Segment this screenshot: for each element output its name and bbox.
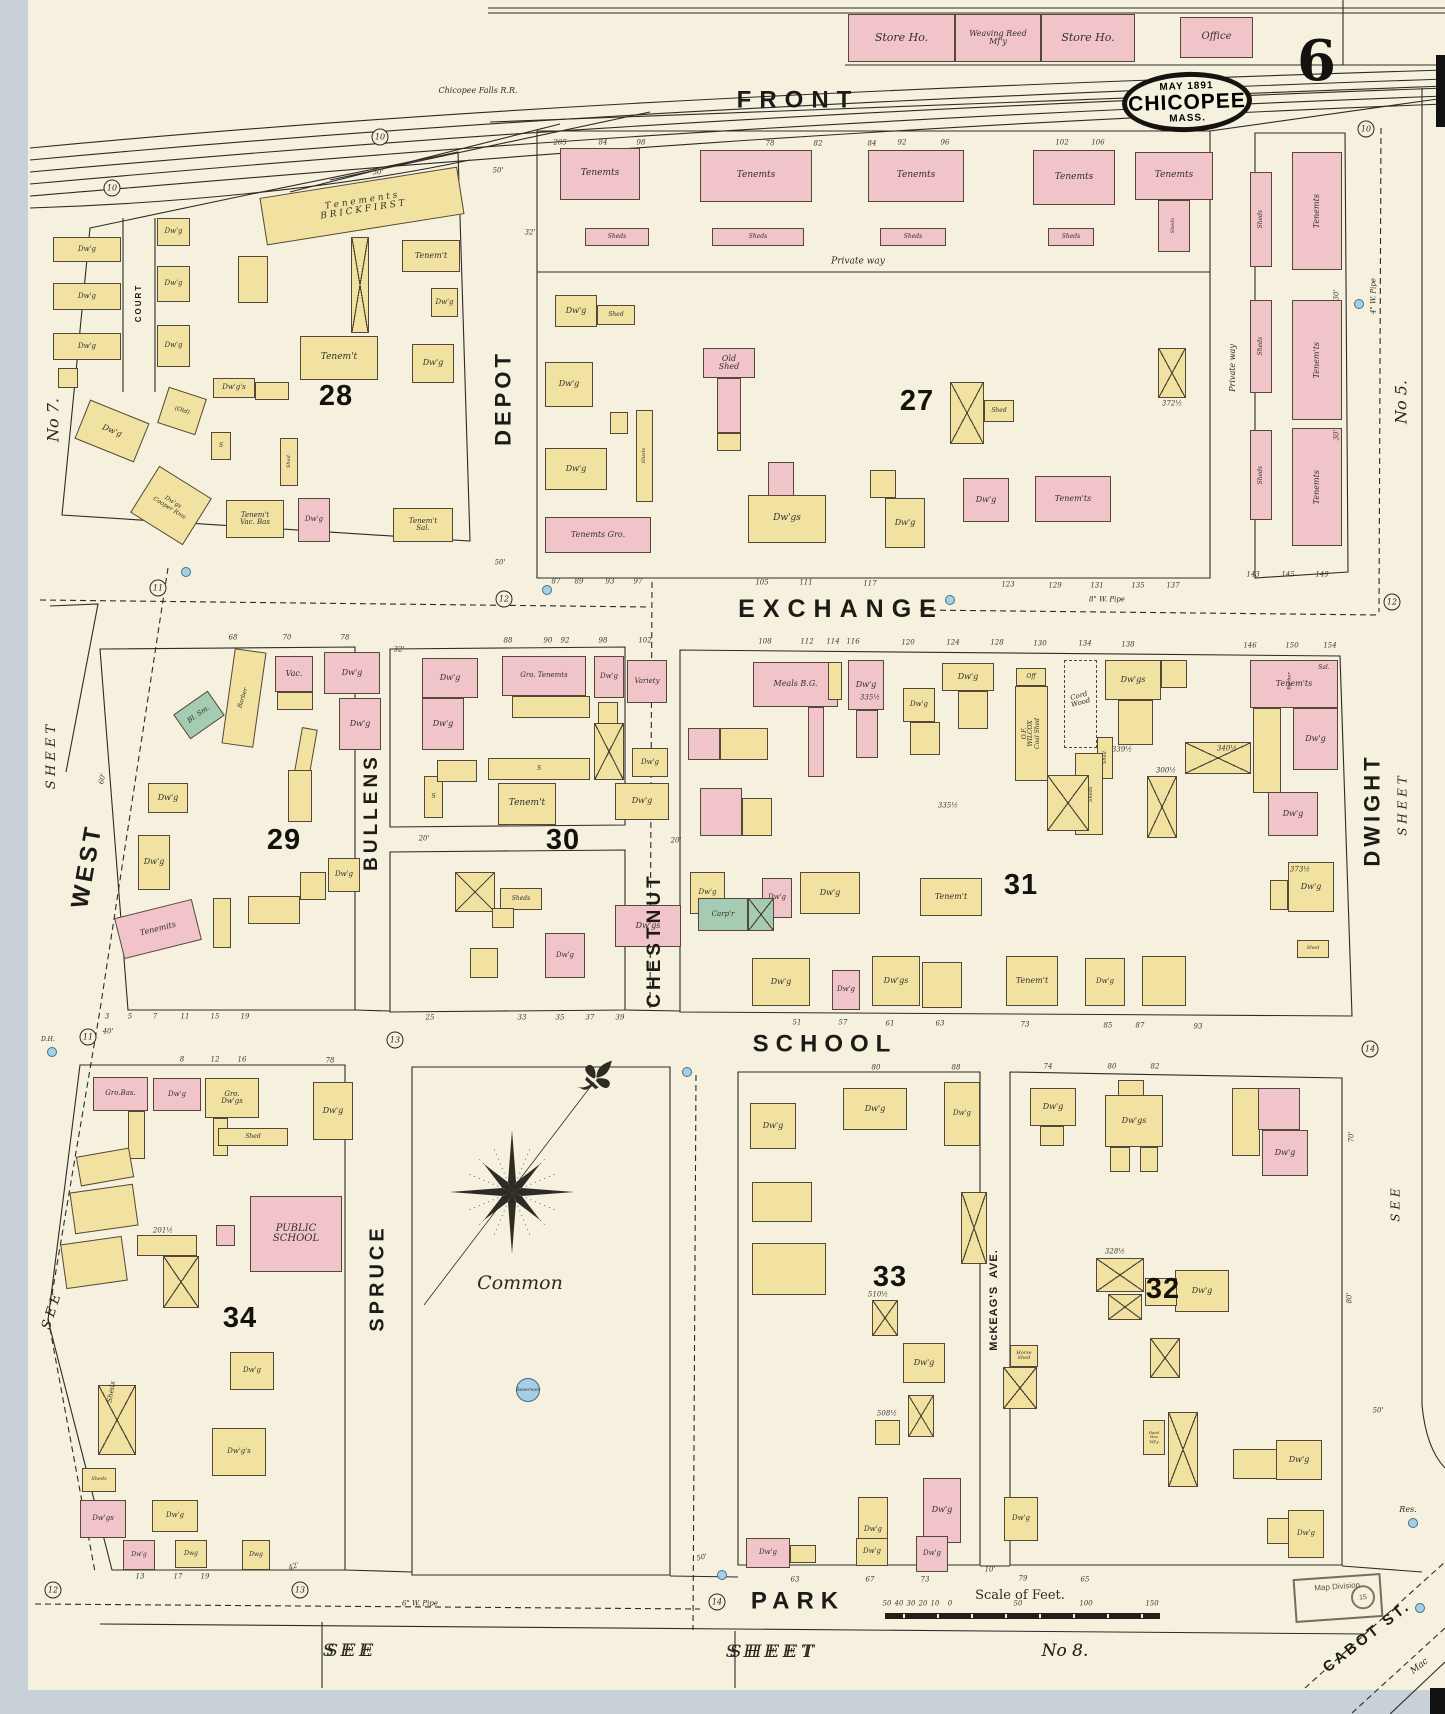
building-dw-g: Dw'g [800,872,860,914]
building [856,710,878,758]
building-label: Tenemts [1313,194,1321,228]
building-label: Tenem't Vac. Bas [240,512,270,527]
building-sheds: Sheds [880,228,946,246]
annotation: Chicopee Falls R.R. [439,87,518,95]
building-label: Dw'g [865,1105,886,1113]
street-number: 35 [556,1014,565,1021]
building [958,691,988,729]
building [828,662,842,700]
street-number: 98 [599,637,608,644]
street-number: 57 [839,1019,848,1026]
building-label: Dw'g [1012,1515,1030,1522]
building-label: Dw'g [1301,883,1322,891]
margin-label: S H E E T [1397,776,1410,835]
building-tenem-ts: Tenem'ts [1035,476,1111,522]
building-label: Sheds [1062,234,1080,240]
building-label: Shed [608,312,623,318]
building [808,707,824,777]
building-label: Sheds [1258,337,1264,355]
building [950,382,984,444]
street-number: 82 [814,140,823,147]
building-dw-g: Dw'g [848,660,884,710]
building [875,1420,900,1445]
building-dw-g: Dw'g [843,1088,907,1130]
building-label: Dw'g's [222,384,246,391]
dimension-label: 328½ [1105,1248,1125,1255]
sheet-number: 6 [1297,28,1336,94]
building-dw-g: Dw'g [230,1352,274,1390]
scale-tick: 30 [907,1600,916,1607]
building-label: Dw'g [856,681,877,689]
building [1108,1294,1142,1320]
street-number: 114 [826,638,839,645]
street-number: 3 [105,1013,109,1020]
street-number: 87 [552,578,561,585]
annotation: Common [477,1274,563,1294]
building [752,1182,812,1222]
dimension-label: 50' [373,169,384,176]
building-dw-gs: Dw'gs [80,1500,126,1538]
building-dw-g: Dw'g [157,266,190,302]
building-label: Variety [634,678,659,685]
hydrant-icon [717,1570,727,1580]
building-label: Shed [1307,946,1320,951]
building-dw-g: Dw'g [313,1082,353,1140]
building-label: Dw'g [164,342,182,349]
compass-rose [450,1130,574,1254]
building-tenem-t-sal: Tenem't Sal. [393,508,453,542]
building-label: Dw'g [164,228,182,235]
building-label: Tenem't [415,252,447,260]
building-label: Dw'g [837,986,855,993]
scale-tick: 150 [1145,1600,1158,1607]
building-label: Sheds [608,234,626,240]
building-label: Dw'g [559,380,580,388]
map-line [412,1067,670,1575]
building [688,728,720,760]
street-number: 84 [599,139,608,146]
street-number: 149 [1315,571,1328,578]
building [1258,1088,1300,1130]
building-label: Reed Hse Mf'y [1149,1431,1159,1444]
building-label: PUBLIC SCHOOL [273,1224,319,1245]
dimension-label: 30' [1333,430,1340,441]
street-label-park: PARK [751,1588,845,1613]
block-number-34: 34 [223,1303,257,1333]
street-number: 33 [518,1014,527,1021]
scale-bar [885,1613,1160,1619]
building [790,1545,816,1563]
building-dw-g: Dw'g [123,1540,155,1570]
building-label: Dw'g [1043,1103,1064,1111]
title-state: MASS. [1169,112,1206,124]
street-number: 111 [799,579,812,586]
annotation: 4" W. Pipe [1370,278,1377,314]
scale-tick: 0 [948,1600,952,1607]
dimension-label: 508½ [877,1410,897,1417]
building-label: Shed [245,1134,260,1140]
building [437,760,477,782]
dimension-label: 340½ [1217,745,1237,752]
building-label: Dw'g [820,889,841,897]
building-label: Dw'g [771,978,792,986]
building-label: Sheds [642,448,647,463]
building-dw-g: Dw'g [555,295,597,327]
margin-label: S E E [1390,1188,1403,1221]
street-number: 74 [1044,1063,1053,1070]
building [717,433,741,451]
building-dw-g: Dw'g [298,498,330,542]
street-number: 61 [886,1020,895,1027]
building [752,1243,826,1295]
building-label: Dw'g [350,720,371,728]
street-number: 129 [1048,582,1061,589]
street-number: 124 [946,639,959,646]
building-label: Tenem't [935,893,967,901]
street-number: 116 [846,638,859,645]
building [238,256,268,303]
building-label: Dw'g [131,1552,146,1558]
annotation: D.H. [41,1037,55,1043]
street-number: 8 [180,1056,184,1063]
building [748,898,774,931]
street-number: 25 [426,1014,435,1021]
building-dw-g: Dw'g [752,958,810,1006]
margin-label: No 8. [1042,1643,1089,1661]
street-number: 85 [1104,1022,1113,1029]
street-number: 65 [1081,1576,1090,1583]
building-label: Dw'gs [884,977,909,985]
street-number: 92 [561,637,570,644]
dimension-label: 10' [985,1566,996,1573]
building [610,412,628,434]
building-tenem-t: Tenem't [402,240,460,272]
building [248,896,300,924]
building [1003,1367,1037,1409]
building-label: Tenem't [509,799,545,808]
street-number: 84 [868,140,877,147]
building-dw-g: Dw'g [545,362,593,407]
building-dw-g: Dw'g [53,283,121,310]
building-dw-g: Dw'g [942,663,994,691]
street-number: 79 [1019,1575,1028,1582]
building [128,1111,145,1159]
building [1110,1147,1130,1172]
street-number: 88 [952,1064,961,1071]
building [922,962,962,1008]
building [872,1300,898,1336]
building-tenemts: Tenemts [1135,152,1213,200]
building-gro-bas: Gro.Bas. [93,1077,148,1111]
dimension-label: 20' [671,837,682,844]
street-number: 93 [1194,1023,1203,1030]
building-label: O.F. WILCOX Coal Shed [1022,718,1041,749]
margin-label: S H E E T [45,725,59,789]
street-label-bullens: BULLENS [362,753,382,871]
building-label: Dw'g [1275,1149,1296,1157]
hydrant-icon [1408,1518,1418,1528]
annotation: 8" W. Pipe [1089,596,1125,603]
building [1267,1518,1289,1544]
building-label: T e n e m e n t s B R I C K F I R S T [319,190,406,222]
building-dw-g: Dw'g [632,748,668,777]
building-label: Dw'g [566,307,587,315]
building-label: Dw'g [144,858,165,866]
building-shed: Shed [597,305,635,325]
building-label: Tenem'ts [1313,342,1321,378]
building [512,696,590,718]
building-label: Dw'g [600,673,618,680]
building-dw-g: Dw'g [885,498,925,548]
building-label: Dw'g [895,519,916,527]
building-label: Vac. [286,670,303,678]
building [455,872,495,912]
building [961,1192,987,1264]
scale-tick: 10 [931,1600,940,1607]
building-label: Dw'g [101,423,123,438]
street-number: 146 [1243,642,1256,649]
building-label: Sheds [749,234,767,240]
building-dw-g: Dw'g [1085,958,1125,1006]
building [720,728,768,760]
building-label: Tenem'ts [1055,495,1091,503]
building-horse-shed: Horse Shed [1010,1345,1038,1367]
building-label: Dw'g [1283,810,1304,818]
building-weaving-reed-mf-y: Weaving Reed Mf'y [955,14,1041,62]
building-label: Sheds [1258,210,1264,228]
building [277,692,313,710]
annotation: Barber [1287,672,1292,690]
building-dw-g: Dw'g [1175,1270,1229,1312]
building-label: Tenemts Gro. [571,531,625,539]
dimension-label: 339½ [1112,746,1132,753]
building-sheds: Sheds [1158,200,1190,252]
building-dw-gs: Dw'gs [1105,660,1161,700]
street-number: 15 [211,1013,220,1020]
building-label: Dw'g [335,871,353,878]
scale-tick: 50 [883,1600,892,1607]
block-number-30: 30 [546,825,580,855]
water-pipe-marker: 12 [45,1582,62,1599]
water-pipe-marker: 13 [292,1582,309,1599]
street-number: 68 [229,634,238,641]
building-label: Dwg [249,1552,263,1558]
building-label: Off [1026,674,1035,680]
building-label: Old Shed [719,355,740,372]
annotation: 6" W. Pipe [402,1600,438,1607]
building-label: Dw'g [168,1091,186,1098]
building-s: S [488,758,590,780]
building-label: Dw'g [958,673,979,681]
building-dw-g: Dw'g [832,970,860,1010]
dimension-label: 510½ [868,1291,888,1298]
building-label: Dw'g [78,293,96,300]
building [1118,1080,1144,1096]
dimension-label: 40' [103,1028,114,1035]
dimension-label: 32' [525,229,536,236]
scale-tick: 40 [895,1600,904,1607]
building-sheds: Sheds [712,228,804,246]
building-dw-g: Dw'g [339,698,381,750]
street-number: 143 [1246,571,1259,578]
building-dw-g: Dw'g [594,656,624,698]
building-label: Dw'g's [227,1448,251,1455]
building-tenemts: Tenemts [560,148,640,200]
water-pipe-marker: 11 [150,580,167,597]
building-dw-g: Dw'g [1268,792,1318,836]
street-number: 51 [793,1019,802,1026]
street-number: 78 [326,1057,335,1064]
building-dw-gs: Dw'gs [748,495,826,543]
building [1232,1088,1260,1156]
water-pipe-marker: 12 [1384,594,1401,611]
street-number: 73 [921,1576,930,1583]
water-pipe-marker: 13 [387,1032,404,1049]
map-line [390,850,625,1012]
building-label: Shed [991,408,1006,414]
street-label-chestnut: CHESTNUT [645,872,665,1007]
building-dw-g: Dw'g [138,835,170,890]
street-number: 128 [990,639,1003,646]
building [742,798,772,836]
dimension-label: 335½ [860,694,880,701]
water-pipe-marker: 14 [709,1594,726,1611]
block-number-31: 31 [1004,870,1038,900]
building-tenemts-gro: Tenemts Gro. [545,517,651,553]
building-dw-g: Dw'g [615,783,669,820]
street-number: 105 [755,579,768,586]
building-dw-g: Dw'g [903,1343,945,1383]
building-dw-gs: Dw'gs [872,956,920,1006]
building-label: Dw'g [440,674,461,682]
street-number: 134 [1078,640,1091,647]
building-label: Dw'g [166,1512,184,1519]
building-o-f-wilcox-coal-shed: O.F. WILCOX Coal Shed [1015,686,1048,781]
map-line [48,1065,345,1570]
building-label: Shed [286,456,291,469]
building-gro-tenemts: Gro. Tenemts [502,656,586,696]
building [910,722,940,755]
building-label: Dw'g [243,1367,261,1374]
street-number: 90 [544,637,553,644]
building-meals-b-g: Meals B.G. [753,662,838,707]
building [163,1256,199,1308]
hydrant-icon [181,567,191,577]
street-number: 63 [936,1020,945,1027]
building-dw-g: Dw'g [422,698,464,750]
building-label: Dw'g [932,1506,953,1514]
building-shed: Shed [218,1128,288,1146]
street-number: 63 [791,1576,800,1583]
street-number: 130 [1033,640,1046,647]
street-number: 73 [1021,1021,1030,1028]
building-dw-g: Dw'g [856,1538,888,1566]
street-label-exchange: EXCHANGE [738,596,944,622]
building [492,908,514,928]
building-label: Dw'g [78,246,96,253]
annotation: Sal. [1318,665,1330,671]
building-label: Dw'g [556,952,574,959]
building-label: Dw'g [433,720,454,728]
building-label: Dw'g [435,299,453,306]
street-number: 70 [283,634,292,641]
building-label: Tenem't [1016,977,1048,985]
street-number: 7 [153,1013,157,1020]
street-label-court: COURT [135,284,143,322]
building-variety: Variety [627,660,667,703]
building-dw-g: Dw'g [545,933,585,978]
street-label-dwight: DWIGHT [1360,753,1383,866]
building-sheds: Sheds [585,228,649,246]
building-dw-g: Dw'g [53,237,121,262]
street-label-spruce: SPRUCE [368,1224,389,1331]
building [594,723,624,780]
dimension-label: 50' [493,167,504,174]
corner-mark-bottom [1430,1688,1445,1714]
dimension-label: 30' [1333,290,1340,301]
building [1147,776,1177,838]
block-number-29: 29 [267,825,301,855]
building-tenem-t: Tenem't [1006,956,1058,1006]
building-label: Meals B.G. [774,680,818,688]
street-number: 138 [1121,641,1134,648]
building-carp-r: Carp'r [698,898,748,931]
block-number-27: 27 [900,386,934,416]
building [69,1184,138,1234]
margin-label: S H E E T [730,1644,814,1662]
building [717,378,741,433]
building-dw-g: Dw'g [157,325,190,367]
annotation: Res. [1399,1506,1416,1514]
building-label: Dw'g [423,359,444,367]
water-pipe-marker: 12 [496,591,513,608]
building-dw-g: Dw'g [545,448,607,490]
building-label: Dw'g [566,465,587,473]
street-number: 106 [1091,139,1104,146]
map-division-stamp: Map Division 15 [1293,1573,1384,1623]
building-dw-g: Dw'g [923,1478,961,1543]
building-label: Dw'g [1096,978,1114,985]
building-sheds: Sheds [1250,300,1272,393]
reservoir: Reservoir [516,1378,540,1402]
street-number: 98 [637,139,646,146]
street-number: 11 [181,1013,190,1020]
building-label: Dw'g [305,516,323,523]
hydrant-icon [945,595,955,605]
street-number: 82 [1151,1063,1160,1070]
building-dw-g: Dw'g [422,658,478,698]
margin-label: No 7. [46,398,63,442]
building [1118,700,1153,745]
building-label: Dw'g [632,797,653,805]
building [1168,1412,1198,1487]
street-number: 78 [341,634,350,641]
building [216,1225,235,1246]
building [470,948,498,978]
water-pipe-marker: 14 [1362,1041,1379,1058]
building-label: Gro.Bas. [105,1090,135,1097]
building-label: Dw'g [1297,1530,1315,1537]
street-number: 19 [241,1013,250,1020]
street-number: 205 [553,139,566,146]
street-number: 117 [863,580,876,587]
building-tenem-t: Tenem't [300,336,378,380]
street-number: 150 [1285,642,1298,649]
building-label: Dw'g [698,889,716,896]
dimension-label: 32' [394,646,405,653]
building [908,1395,934,1437]
building-label: Dw'g [923,1550,941,1557]
